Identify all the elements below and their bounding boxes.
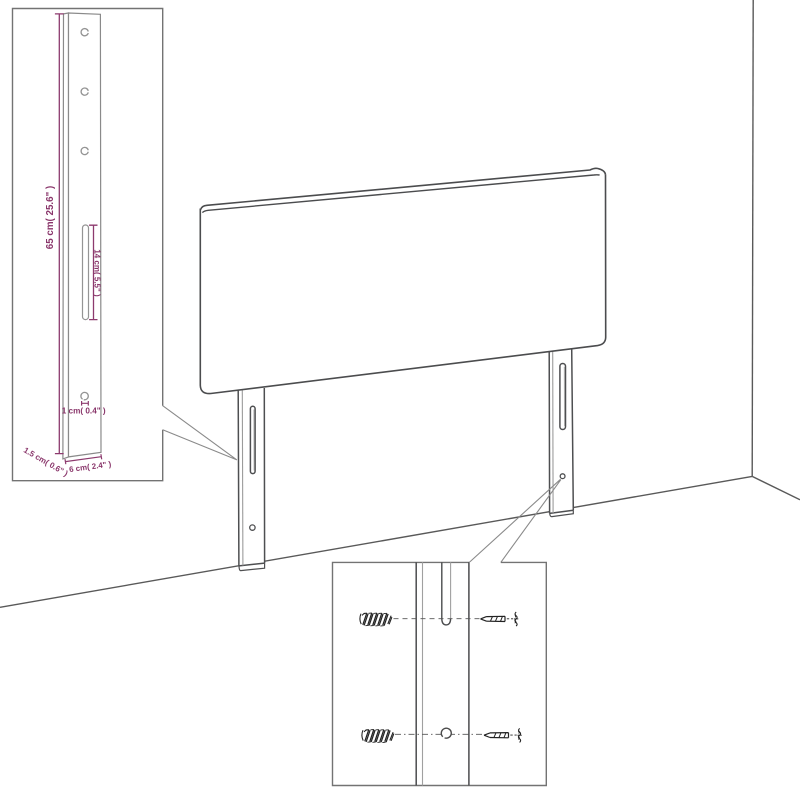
svg-text:14 cm( 5.5" ): 14 cm( 5.5" ) [92, 249, 101, 297]
svg-text:1 cm( 0.4" ): 1 cm( 0.4" ) [62, 407, 106, 416]
svg-text:65 cm( 25.6" ): 65 cm( 25.6" ) [45, 186, 56, 249]
